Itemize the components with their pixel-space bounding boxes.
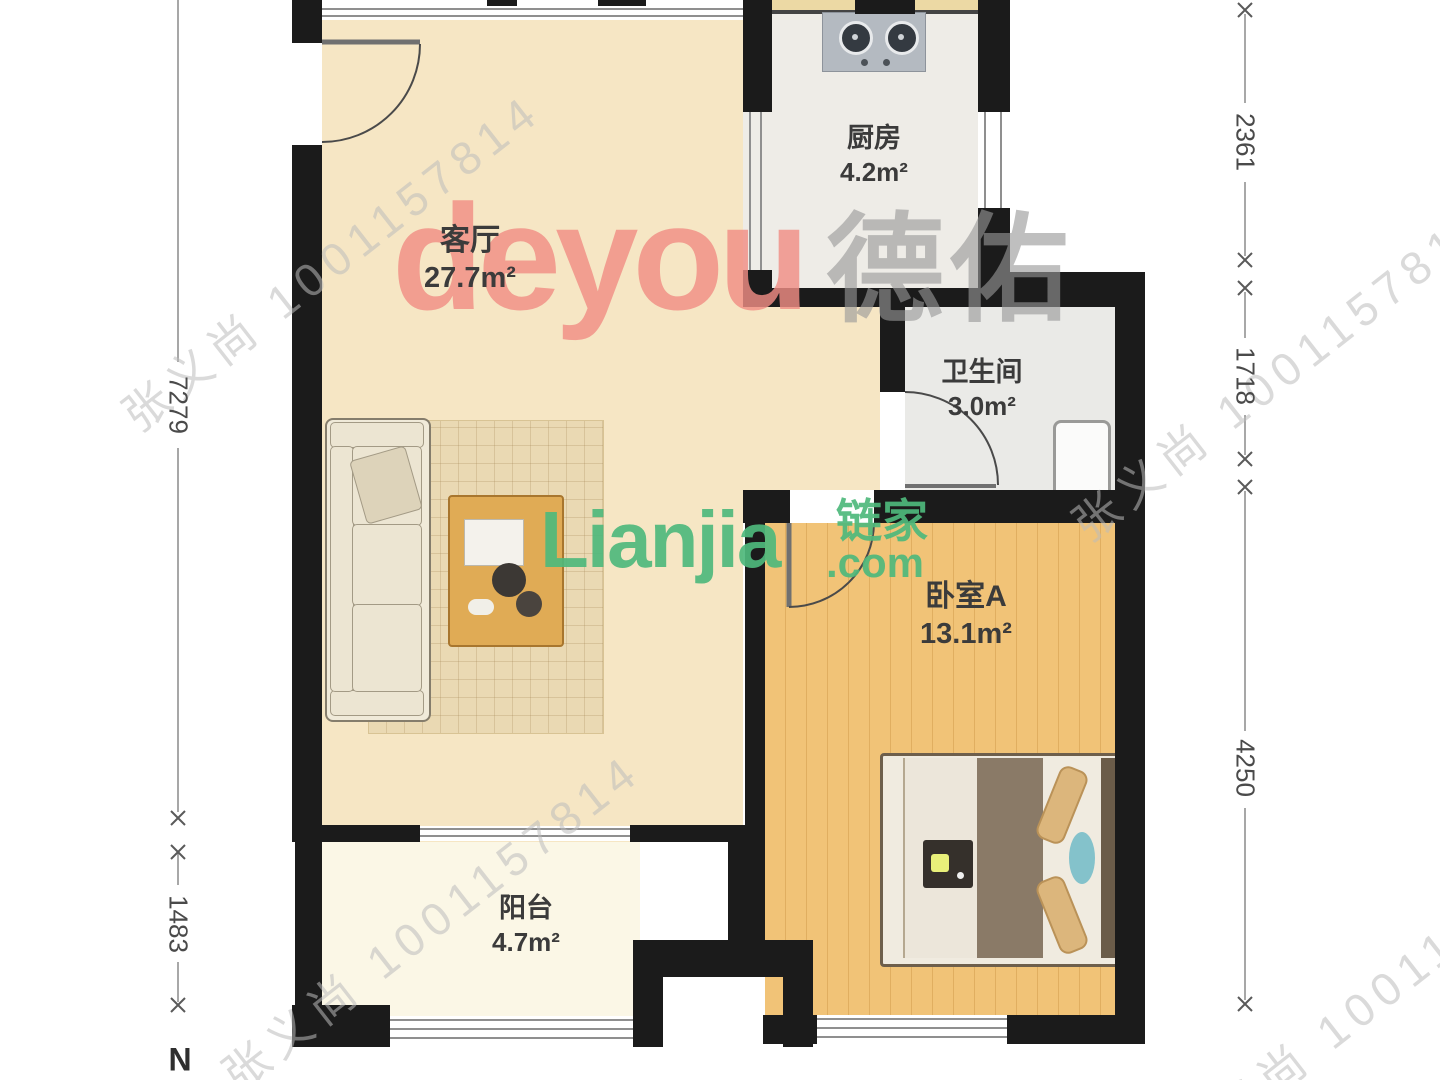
dimension-left-1: 7279 — [163, 376, 194, 434]
floorplan-canvas: 张义尚 1001157814 张义尚 1001157814 张义尚 100115… — [0, 0, 1440, 1080]
dimension-ticks — [171, 3, 1252, 1012]
room-area: 3.0m² — [942, 390, 1023, 423]
room-name: 阳台 — [492, 892, 560, 926]
room-name: 客厅 — [424, 222, 516, 260]
room-area: 13.1m² — [920, 616, 1012, 652]
dimension-right-1: 2361 — [1230, 113, 1261, 171]
room-label-kitchen: 厨房 4.2m² — [840, 122, 908, 188]
dimension-left-2: 1483 — [163, 895, 194, 953]
room-label-living: 客厅 27.7m² — [424, 222, 516, 296]
bedroom-door-arc — [789, 523, 874, 607]
dimension-lines — [178, 0, 1245, 1002]
room-label-balcony: 阳台 4.7m² — [492, 892, 560, 958]
plan-linework — [0, 0, 1440, 1080]
room-label-bathroom: 卫生间 3.0m² — [942, 356, 1023, 422]
room-area: 27.7m² — [424, 260, 516, 296]
dimension-right-3: 4250 — [1230, 739, 1261, 797]
room-name: 卧室A — [920, 578, 1012, 616]
compass-north-label: N — [168, 1042, 191, 1079]
dimension-right-2: 1718 — [1230, 347, 1261, 405]
room-area: 4.2m² — [840, 156, 908, 189]
room-label-bedroom: 卧室A 13.1m² — [920, 578, 1012, 652]
room-area: 4.7m² — [492, 926, 560, 959]
entry-door-arc — [322, 44, 420, 142]
room-name: 卫生间 — [942, 356, 1023, 390]
room-name: 厨房 — [840, 122, 908, 156]
